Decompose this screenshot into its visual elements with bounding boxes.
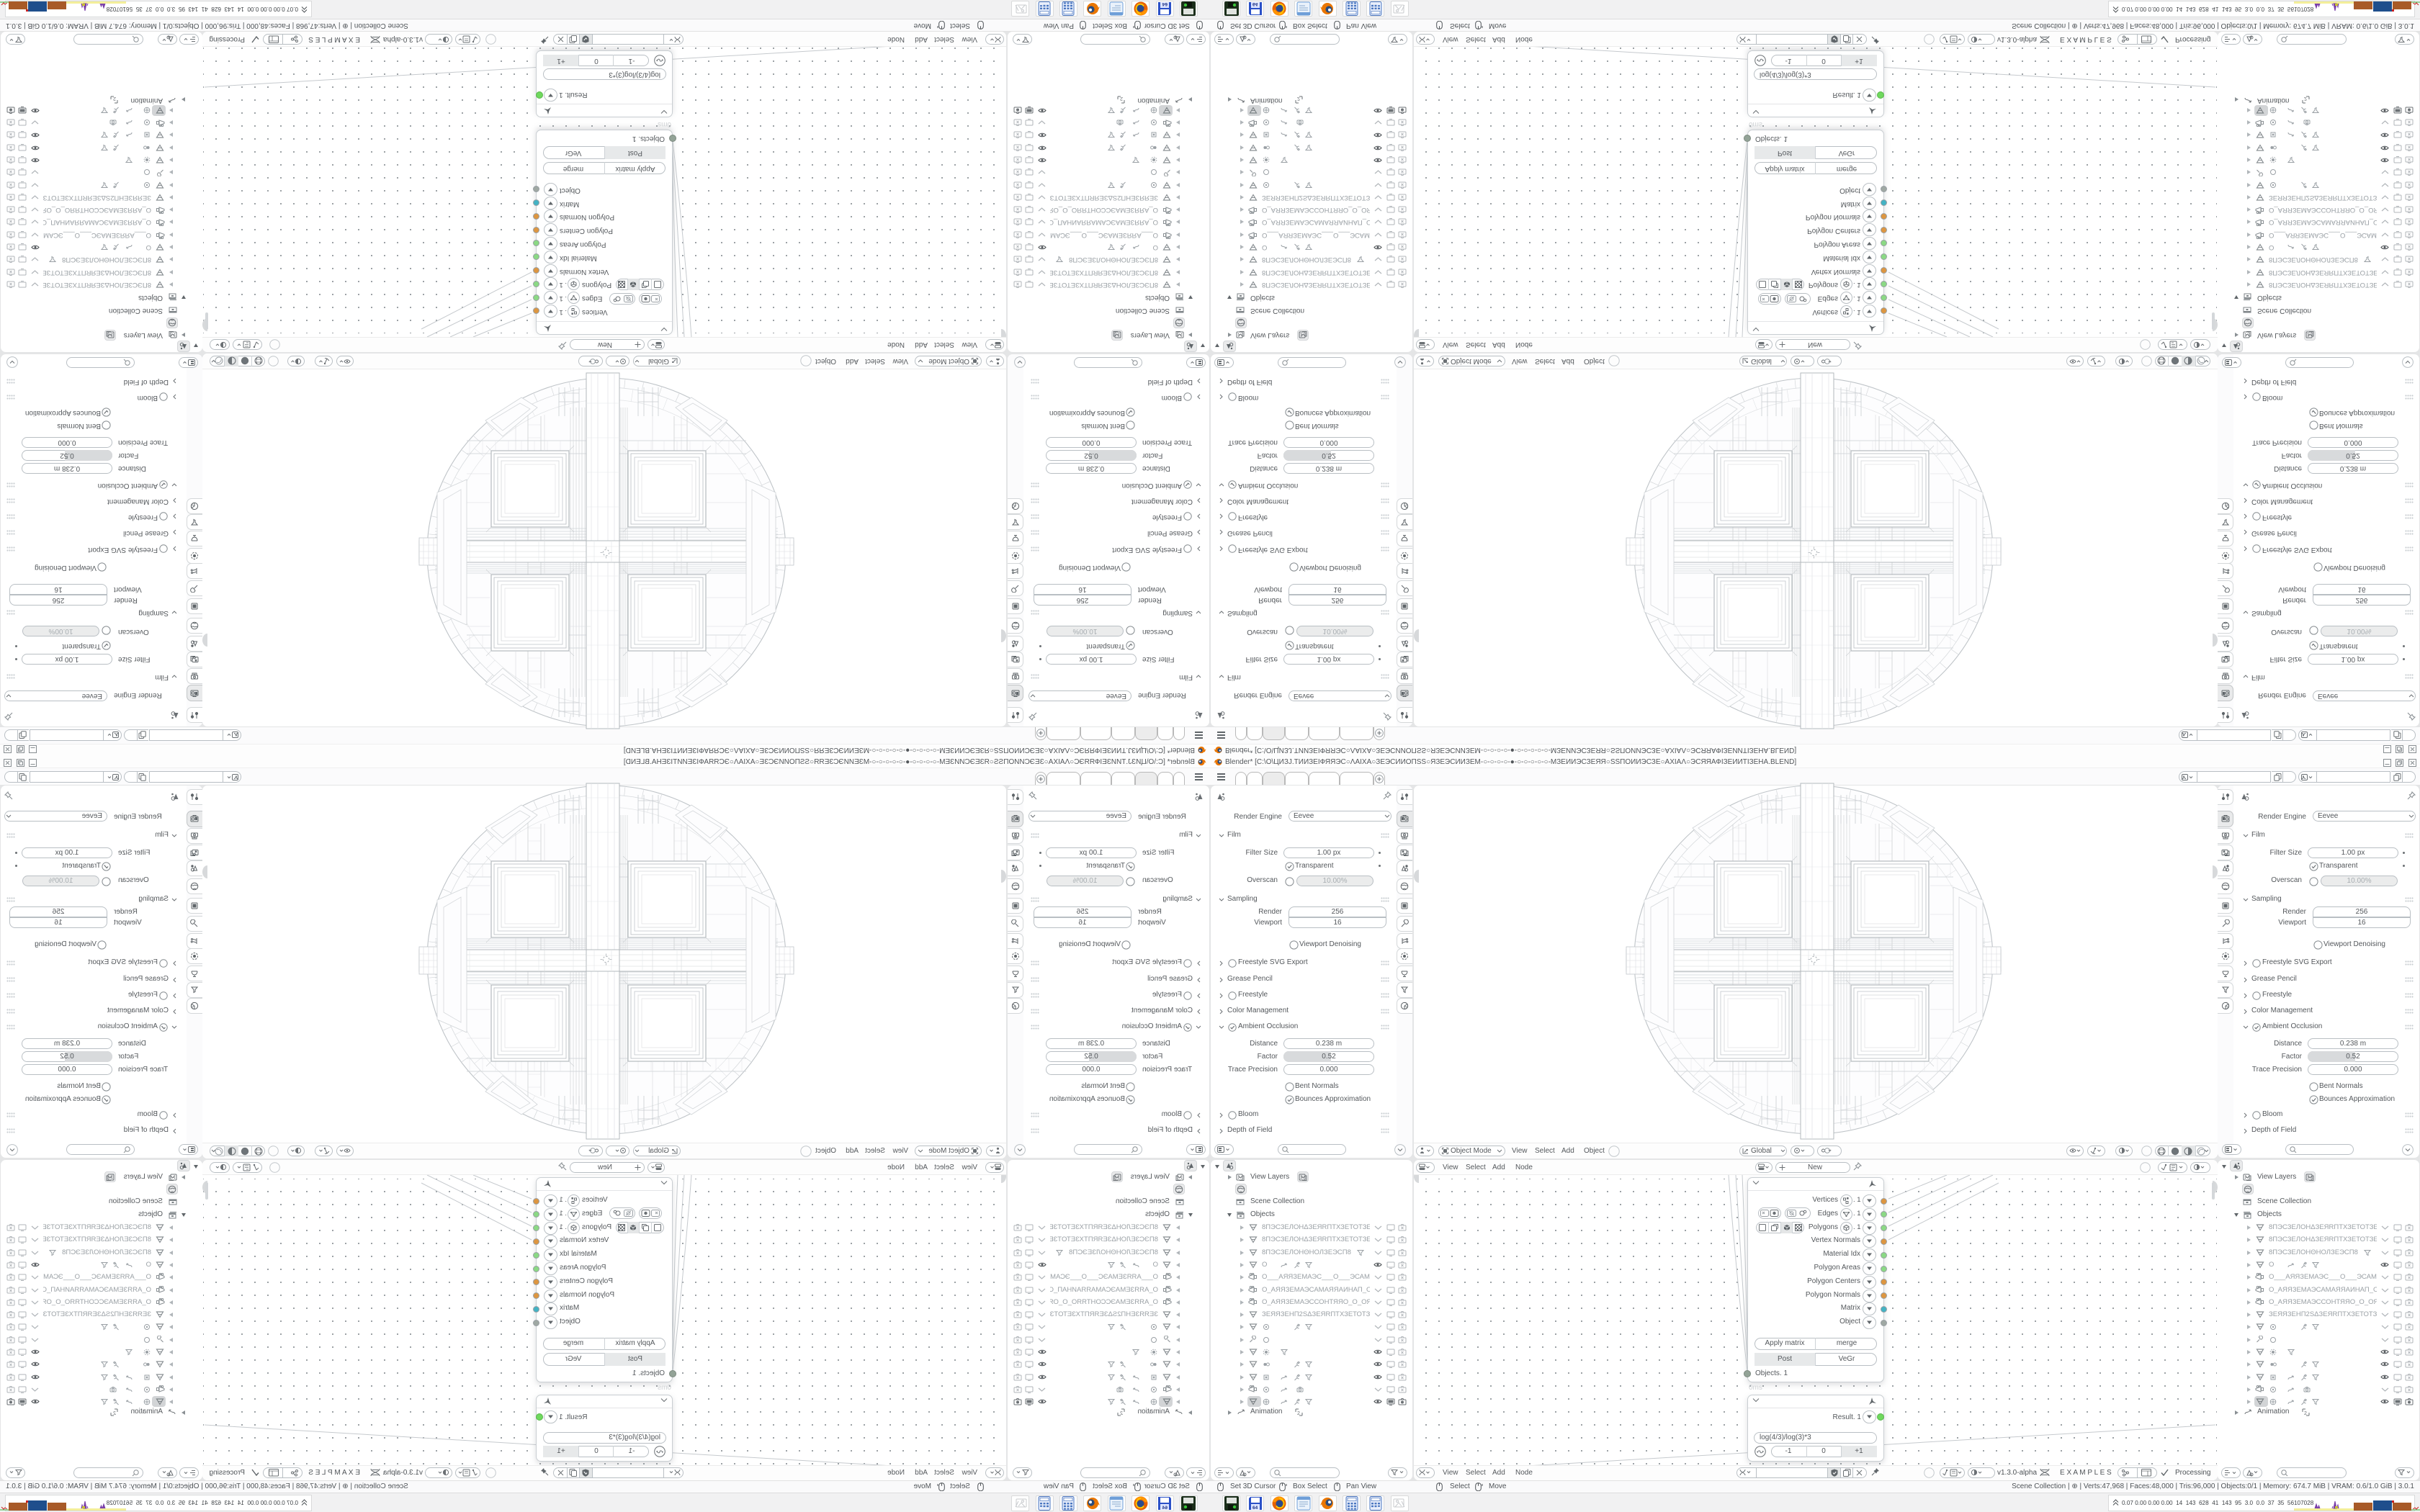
svg-text:2: 2 — [2304, 1411, 2307, 1416]
svg-text:64: 64 — [1162, 1506, 1168, 1511]
svg-text:2: 2 — [2304, 96, 2307, 101]
svg-text:64: 64 — [1252, 1, 1258, 6]
svg-text:2: 2 — [1120, 96, 1123, 101]
svg-text:64: 64 — [1252, 1506, 1258, 1511]
svg-text:2: 2 — [1120, 1411, 1123, 1416]
svg-text:64: 64 — [1162, 1, 1168, 6]
svg-text:2: 2 — [113, 1411, 116, 1416]
svg-text:2: 2 — [1297, 1411, 1300, 1416]
svg-text:2: 2 — [1297, 96, 1300, 101]
svg-text:2: 2 — [113, 96, 116, 101]
